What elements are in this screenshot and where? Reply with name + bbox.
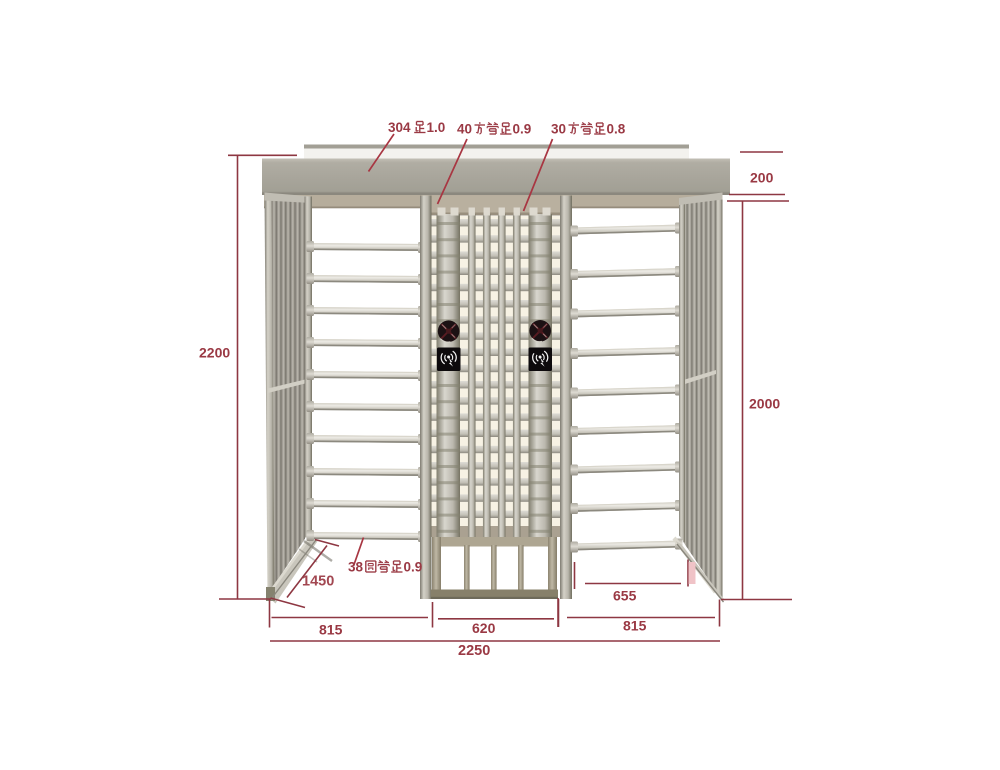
svg-text:2000: 2000 — [749, 396, 780, 412]
svg-text:304: 304 — [388, 120, 411, 135]
svg-text:2200: 2200 — [199, 345, 230, 361]
svg-text:38: 38 — [348, 560, 364, 575]
svg-text:815: 815 — [623, 618, 647, 634]
svg-text:0.8: 0.8 — [607, 122, 626, 137]
svg-text:0.9: 0.9 — [513, 122, 532, 137]
svg-text:40: 40 — [457, 122, 472, 137]
svg-text:0.9: 0.9 — [404, 560, 423, 575]
svg-text:2250: 2250 — [458, 643, 490, 659]
svg-text:815: 815 — [319, 622, 343, 638]
svg-text:655: 655 — [613, 588, 637, 604]
svg-text:200: 200 — [750, 170, 774, 186]
svg-text:1450: 1450 — [302, 574, 334, 590]
svg-text:620: 620 — [472, 620, 496, 636]
svg-text:1.0: 1.0 — [427, 120, 446, 135]
svg-text:30: 30 — [551, 122, 566, 137]
